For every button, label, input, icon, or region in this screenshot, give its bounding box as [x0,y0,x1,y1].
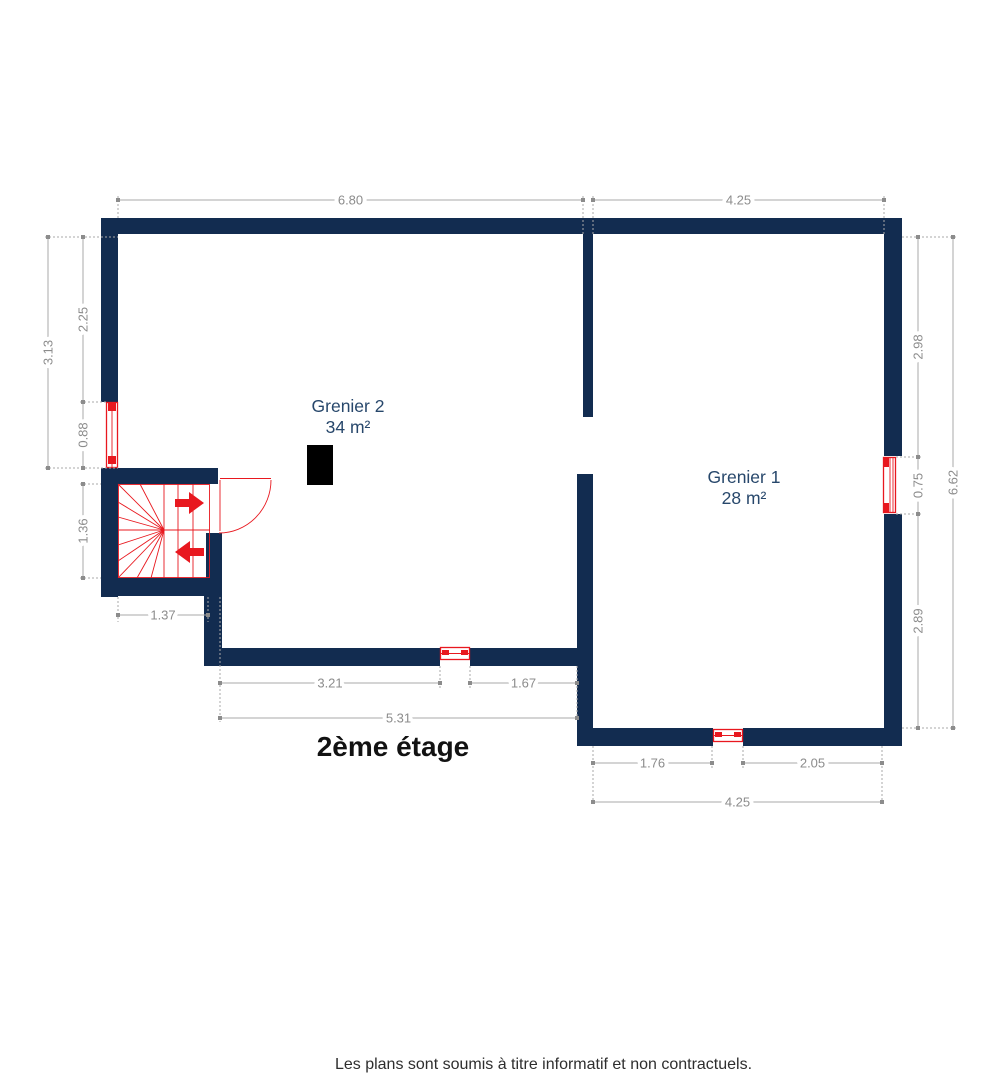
dimension-end-marker [218,681,222,685]
dimension-end-marker [916,455,920,459]
dimension-end-marker [81,400,85,404]
dimension-end-marker [882,198,886,202]
floor-plan-drawing: 6.804.253.132.250.881.361.373.211.675.31… [0,0,1001,1080]
dimension-end-marker [116,613,120,617]
dimension-label: 1.76 [640,756,665,771]
dimension-end-marker [880,800,884,804]
dimension-label: 3.21 [317,676,342,691]
dimension-end-marker [951,235,955,239]
dimension-end-marker [81,466,85,470]
room-label-grenier1: Grenier 1 [708,467,781,487]
dimension-label: 2.98 [911,334,926,359]
wall-stair-top [101,468,218,484]
dimension-end-marker [81,576,85,580]
dimension-end-marker [581,198,585,202]
dimension-end-marker [81,482,85,486]
dimension-end-marker [880,761,884,765]
disclaimer-text: Les plans sont soumis à titre informatif… [86,1056,1001,1074]
dimension-label: 4.25 [725,795,750,810]
walls [101,218,902,746]
dimension-end-marker [81,235,85,239]
wall-grenier2-bottom-left [204,648,440,666]
room-area-grenier2: 34 m² [326,417,371,437]
dimension-end-marker [916,512,920,516]
dimension-end-marker [46,466,50,470]
wall-right-upper [884,234,902,456]
wall-right-lower [884,514,902,728]
window-left-wall [107,403,118,468]
stair-up-arrow-icon [175,492,204,514]
wall-top [101,218,902,234]
window-grenier1-bottom [714,730,743,742]
staircase [118,484,210,578]
door-swing [219,479,271,534]
dimension-end-marker [116,198,120,202]
wall-divider-upper [583,234,593,417]
dimension-label: 6.62 [946,470,961,495]
wall-grenier2-bottom-right [470,648,593,666]
dimension-end-marker [951,726,955,730]
dimension-end-marker [46,235,50,239]
dimension-label: 1.67 [511,676,536,691]
dimension-end-marker [575,681,579,685]
dimension-label: 0.88 [76,422,91,447]
stair-down-arrow-icon [175,541,204,563]
room-area-grenier1: 28 m² [722,488,767,508]
wall-divider-lower [577,474,593,746]
dimension-label: 3.13 [41,340,56,365]
wall-left-upper [101,218,118,402]
dimension-label: 2.05 [800,756,825,771]
dimension-label: 1.37 [150,608,175,623]
wall-left-lower [101,468,118,597]
dimension-label: 0.75 [911,473,926,498]
dimension-label: 5.31 [386,711,411,726]
wall-grenier1-bottom-right [743,728,902,746]
dimension-label: 6.80 [338,193,363,208]
dimension-end-marker [591,800,595,804]
dimension-end-marker [438,681,442,685]
dimension-label: 2.89 [911,608,926,633]
dimension-end-marker [741,761,745,765]
dimension-end-marker [218,716,222,720]
floor-plan-page: 6.804.253.132.250.881.361.373.211.675.31… [0,0,1001,1080]
dimension-end-marker [591,198,595,202]
dimension-end-marker [591,761,595,765]
dimension-label: 4.25 [726,193,751,208]
stair-winder-fan [118,484,164,578]
dimension-label: 2.25 [76,307,91,332]
floor-title: 2ème étage [317,731,470,762]
dimension-end-marker [710,761,714,765]
dimension-end-marker [916,235,920,239]
dimension-label: 1.36 [76,518,91,543]
chimney-block [307,445,333,485]
dimension-end-marker [575,716,579,720]
wall-grenier1-bottom-left [577,728,713,746]
room-label-grenier2: Grenier 2 [312,396,385,416]
window-grenier2-bottom [441,648,470,660]
dimension-end-marker [468,681,472,685]
wall-stair-bottom [101,578,222,596]
window-right-wall [884,458,896,513]
dimension-end-marker [916,726,920,730]
wall-door-side [206,533,222,580]
dimension-end-marker [206,613,210,617]
